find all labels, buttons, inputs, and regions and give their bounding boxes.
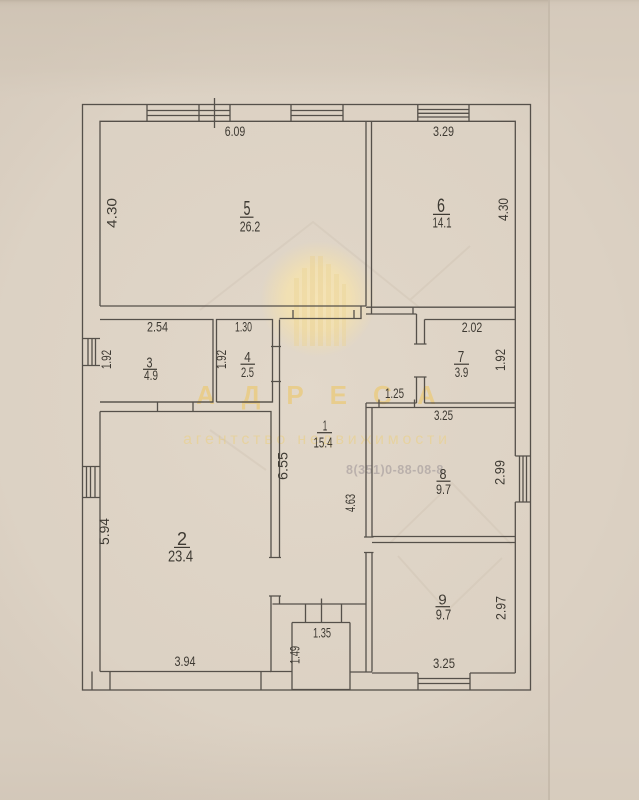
svg-text:2.97: 2.97 — [493, 596, 509, 620]
svg-text:14.1: 14.1 — [433, 215, 452, 232]
svg-text:6.55: 6.55 — [275, 452, 291, 480]
svg-text:4.30: 4.30 — [104, 198, 120, 228]
svg-text:АДРЕСА: АДРЕСА — [196, 380, 462, 410]
svg-text:9.7: 9.7 — [436, 607, 452, 624]
svg-text:3.25: 3.25 — [433, 655, 455, 671]
svg-text:1.49: 1.49 — [287, 646, 303, 664]
svg-text:2.5: 2.5 — [241, 364, 254, 380]
svg-text:4.9: 4.9 — [144, 367, 158, 383]
svg-text:3.94: 3.94 — [175, 653, 196, 669]
svg-text:2.99: 2.99 — [492, 460, 508, 485]
svg-text:3.25: 3.25 — [434, 407, 453, 423]
svg-text:2.54: 2.54 — [147, 319, 168, 335]
svg-text:1.35: 1.35 — [313, 625, 331, 641]
svg-text:2: 2 — [177, 529, 187, 549]
svg-text:1.92: 1.92 — [492, 349, 508, 371]
svg-text:2.02: 2.02 — [462, 319, 483, 335]
svg-text:1.25: 1.25 — [385, 385, 404, 401]
svg-text:26.2: 26.2 — [240, 219, 261, 236]
svg-text:1.92: 1.92 — [213, 350, 229, 369]
svg-text:1.92: 1.92 — [98, 350, 114, 369]
svg-text:8(351)0-88-08-8: 8(351)0-88-08-8 — [346, 463, 444, 477]
svg-text:4.30: 4.30 — [495, 198, 511, 221]
svg-text:15.4: 15.4 — [314, 435, 333, 452]
svg-text:6.09: 6.09 — [225, 123, 246, 139]
svg-text:3.29: 3.29 — [433, 123, 454, 139]
svg-text:1.30: 1.30 — [235, 319, 252, 335]
svg-text:23.4: 23.4 — [168, 549, 193, 566]
svg-text:4.63: 4.63 — [342, 494, 358, 512]
svg-text:3.9: 3.9 — [455, 364, 469, 380]
svg-text:9.7: 9.7 — [436, 481, 451, 497]
svg-text:5.94: 5.94 — [96, 518, 112, 545]
